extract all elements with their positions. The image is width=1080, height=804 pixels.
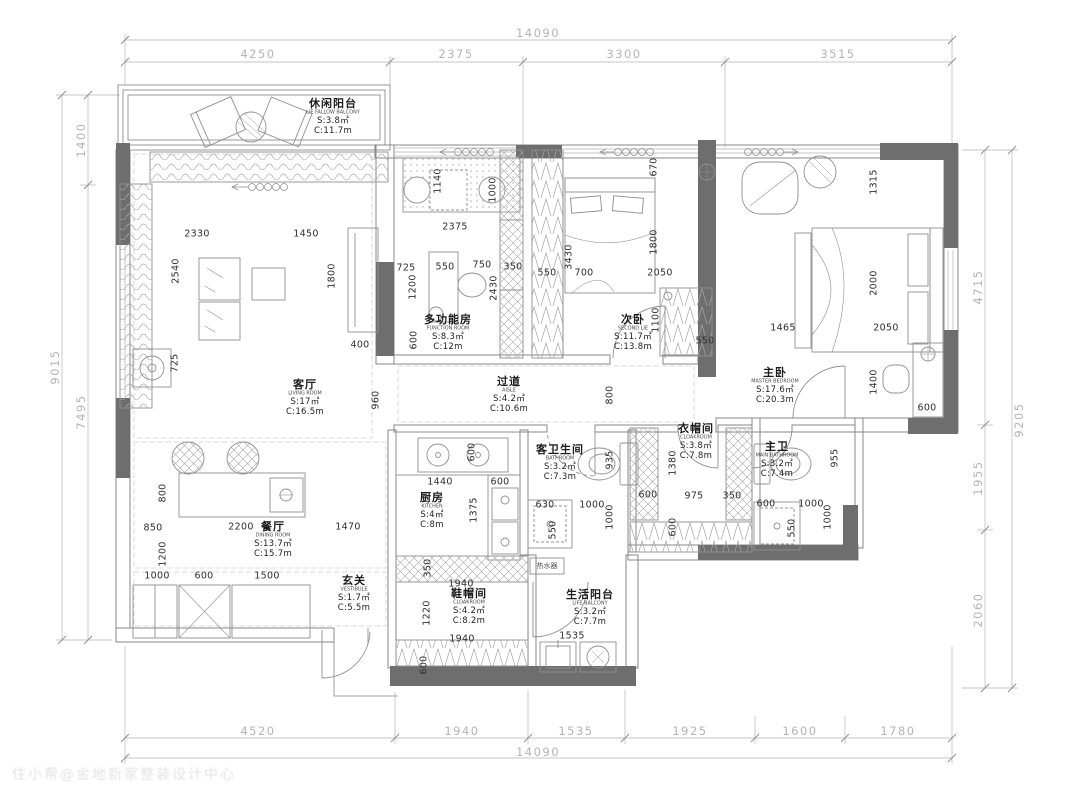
dim-label: 1800 [327, 263, 338, 288]
room-name-cn: 客厅 [285, 379, 326, 391]
room-name-en: BATHROOM [540, 456, 579, 461]
dim-label: 1375 [469, 497, 480, 522]
kitchen-sink [488, 475, 520, 560]
dining-table [179, 473, 305, 517]
dim-label: 1100 [651, 307, 662, 332]
room-name-cn: 次卧 [614, 314, 652, 326]
dim-label: 600 [409, 330, 420, 349]
dim-bottom-1: 4520 [240, 724, 275, 738]
room-name-en: SECOND LIE [617, 326, 648, 331]
room-circumference: C:16.5m [285, 408, 326, 417]
room-name-cn: 多功能房 [422, 314, 474, 326]
dim-bottom-2: 1940 [444, 724, 479, 738]
dim-label: 350 [503, 262, 522, 273]
dim-label: 550 [435, 262, 454, 273]
room-name-cn: 客卫生间 [536, 444, 584, 456]
room-name-cn: 生活阳台 [566, 589, 614, 601]
room-label-life-balcony: 生活阳台 LIFE BALCONY S:3.2㎡ C:7.7m [566, 589, 614, 627]
ceiling-lamp-icon [699, 164, 715, 180]
dim-label: 550 [695, 336, 714, 347]
dim-right-2: 1955 [971, 460, 985, 495]
dim-label: 3430 [564, 244, 575, 269]
coffee-tables [199, 258, 285, 340]
room-label-living-room: 客厅 LIVING ROOM S:17㎡ C:16.5m [285, 379, 326, 417]
room-circumference: C:10.6m [490, 405, 528, 414]
dimension-chains [56, 34, 1018, 764]
entry-door-arc [322, 628, 370, 678]
dim-label: 725 [170, 353, 181, 372]
dim-label: 600 [668, 517, 679, 536]
room-circumference: C:7.7m [566, 618, 614, 627]
dim-total-right: 9205 [1012, 402, 1026, 437]
room-label-main-bathroom: 主卫 MAIN BATHROOM S:3.2㎡ C:7.4m [751, 441, 803, 479]
dim-label: 1000 [579, 500, 604, 511]
dim-left-1: 1400 [74, 122, 88, 157]
room-name-en: CLOAKROOM [680, 435, 712, 440]
room-name-en: VESTIBULE [341, 587, 368, 592]
dim-label: 975 [684, 491, 703, 502]
room-name-en: AISLE [493, 388, 524, 393]
dim-label: 2430 [489, 275, 500, 300]
room-area: S:4.2㎡ [450, 607, 489, 616]
room-circumference: C:12m [422, 343, 474, 352]
dim-label: 670 [649, 157, 660, 176]
room-label-vestibule: 玄关 VESTIBULE S:1.7㎡ C:5.5m [338, 575, 371, 613]
room-area: S:3.2㎡ [536, 463, 584, 472]
room-label-cloakroom: 鞋帽间 CLOAKROOM S:4.2㎡ C:8.2m [450, 588, 489, 626]
dim-label: 935 [605, 450, 616, 469]
hall-wardrobe [500, 150, 563, 358]
dim-label: 1000 [488, 177, 499, 202]
tv-cabinet [348, 228, 378, 332]
dim-label: 2000 [869, 270, 880, 295]
dim-label: 1140 [433, 168, 444, 193]
dim-top-3: 3300 [606, 47, 641, 61]
dim-label: 550 [537, 268, 556, 279]
dim-label: 2375 [442, 222, 467, 233]
dim-label: 1470 [335, 522, 360, 533]
dim-label: 1200 [408, 274, 419, 299]
dim-label: 800 [158, 483, 169, 502]
dim-label: 1440 [427, 477, 452, 488]
room-name-en: KITCHEN [421, 504, 442, 509]
dim-bottom-3: 1535 [558, 724, 593, 738]
room-name-en: LIFE BALCONY [570, 601, 609, 606]
dim-right-3: 2060 [971, 592, 985, 627]
dim-label: 350 [423, 558, 434, 577]
watermark: 住小帮@金地新家整装设计中心 [12, 764, 236, 784]
room-label-function-room: 多功能房 FUNCTION ROOM S:8.3㎡ C:12m [422, 314, 474, 352]
room-name-cn: 主卫 [751, 441, 803, 453]
dim-label: 960 [371, 390, 382, 409]
dim-label: 2540 [171, 258, 182, 283]
dim-bottom-4: 1925 [672, 724, 707, 738]
dim-label: 600 [467, 442, 478, 461]
room-label-master-bedroom: 主卧 MASTER BEDROOM S:17.6㎡ C:20.3m [746, 367, 804, 405]
room-label-closet: 衣帽间 CLOAKROOM S:3.8㎡ C:7.8m [677, 423, 716, 461]
dim-label: 1000 [144, 571, 169, 582]
room-label-guest-bathroom: 客卫生间 BATHROOM S:3.2㎡ C:7.3m [536, 444, 584, 482]
armchair [742, 156, 836, 214]
room-area: S:17.6㎡ [746, 386, 804, 395]
dim-left-2: 7495 [74, 394, 88, 429]
dim-bottom-6: 1780 [880, 724, 915, 738]
room-label-aisle: 过道 AISLE S:4.2㎡ C:10.6m [490, 376, 528, 414]
room-circumference: C:7.3m [536, 473, 584, 482]
dim-label: 600 [638, 490, 657, 501]
dim-bottom-5: 1600 [782, 724, 817, 738]
dim-label: 600 [194, 571, 213, 582]
dim-label: 1450 [293, 229, 318, 240]
dim-label: 1800 [649, 229, 660, 254]
room-name-en: DINING ROOM [256, 533, 291, 538]
water-heater-label: 热水器 [537, 561, 558, 571]
dim-label: 955 [830, 448, 841, 467]
room-area: S:3.2㎡ [751, 460, 803, 469]
shoe-cabinets [133, 585, 310, 638]
dim-label: 750 [472, 260, 491, 271]
room-name-cn: 鞋帽间 [450, 588, 489, 600]
dim-label: 550 [548, 520, 559, 539]
room-label-second-bedroom: 次卧 SECOND LIE S:11.7㎡ C:13.8m [614, 314, 652, 352]
dim-label: 800 [605, 385, 616, 404]
dim-label: 1315 [869, 169, 880, 194]
room-name-en: MASTER BEDROOM [751, 379, 799, 384]
room-circumference: C:5.5m [338, 604, 371, 613]
dim-label: 630 [535, 500, 554, 511]
room-label-leisure-balcony: 休闲阳台 LIE FALLOW BALCONY S:3.8㎡ C:11.7m [300, 98, 365, 136]
dim-label: 600 [419, 655, 430, 674]
room-area: S:3.8㎡ [677, 442, 716, 451]
room-area: S:1.7㎡ [338, 594, 371, 603]
dim-label: 1200 [158, 541, 169, 566]
dim-label: 1000 [823, 504, 834, 529]
dim-label: 2330 [184, 229, 209, 240]
dim-label: 400 [350, 340, 369, 351]
dim-label: 1940 [449, 634, 474, 645]
dim-label: 550 [787, 518, 798, 537]
room-circumference: C:20.3m [746, 396, 804, 405]
dim-label: 1220 [422, 600, 433, 625]
room-name-cn: 衣帽间 [677, 423, 716, 435]
dim-label: 725 [396, 263, 415, 274]
dim-label: 1000 [605, 504, 616, 529]
room-circumference: C:7.4m [751, 470, 803, 479]
dim-top-2: 2375 [438, 47, 473, 61]
dim-total-bottom: 14090 [516, 745, 560, 759]
dim-label: 2050 [647, 268, 672, 279]
dim-label: 350 [722, 491, 741, 502]
room-name-cn: 主卧 [746, 367, 804, 379]
room-circumference: C:15.7m [252, 550, 294, 559]
room-circumference: C:11.7m [300, 127, 365, 136]
room-name-cn: 休闲阳台 [300, 98, 365, 110]
dim-label: 1400 [869, 369, 880, 394]
dim-right-1: 4715 [971, 269, 985, 304]
room-area: S:3.2㎡ [566, 608, 614, 617]
dim-label: 1000 [798, 499, 823, 510]
room-circumference: C:8m [419, 521, 445, 530]
room-area: S:17㎡ [285, 398, 326, 407]
room-area: S:4㎡ [419, 511, 445, 520]
dim-label: 1535 [559, 631, 584, 642]
room-name-en: LIE FALLOW BALCONY [306, 110, 360, 115]
dim-top-1: 4250 [240, 47, 275, 61]
dim-label: 700 [574, 268, 593, 279]
dim-total-top: 14090 [516, 26, 560, 40]
dim-total-left: 9015 [48, 349, 62, 384]
room-name-en: MAIN BATHROOM [756, 453, 799, 458]
room-circumference: C:8.2m [450, 617, 489, 626]
room-name-cn: 玄关 [338, 575, 371, 587]
room-label-dining-room: 餐厅 DINING ROOM S:13.7㎡ C:15.7m [252, 521, 294, 559]
room-area: S:4.2㎡ [490, 395, 528, 404]
room-circumference: C:7.8m [677, 452, 716, 461]
room-circumference: C:13.8m [614, 343, 652, 352]
round-stools [172, 442, 259, 474]
dim-label: 600 [490, 477, 509, 488]
floorplan-canvas: 14090 4250 2375 3300 3515 4520 1940 1535… [0, 0, 1080, 804]
dim-label: 2050 [873, 323, 898, 334]
room-label-kitchen: 厨房 KITCHEN S:4㎡ C:8m [419, 492, 445, 530]
room-name-en: LIVING ROOM [288, 391, 321, 396]
stove [396, 432, 520, 475]
room-name-cn: 餐厅 [252, 521, 294, 533]
dim-label: 850 [143, 523, 162, 534]
room-name-cn: 过道 [490, 376, 528, 388]
room-area: S:13.7㎡ [252, 540, 294, 549]
dim-label: 1500 [254, 571, 279, 582]
room-name-en: CLOAKROOM [453, 600, 485, 605]
dim-label: 2200 [228, 522, 253, 533]
dim-label: 1465 [770, 323, 795, 334]
room-area: S:11.7㎡ [614, 333, 652, 342]
room-name-cn: 厨房 [419, 492, 445, 504]
room-area: S:3.8㎡ [300, 117, 365, 126]
room-name-en: FUNCTION ROOM [427, 326, 470, 331]
room-area: S:8.3㎡ [422, 333, 474, 342]
dim-top-4: 3515 [820, 47, 855, 61]
dim-label: 600 [756, 499, 775, 510]
dim-label: 600 [917, 403, 936, 414]
